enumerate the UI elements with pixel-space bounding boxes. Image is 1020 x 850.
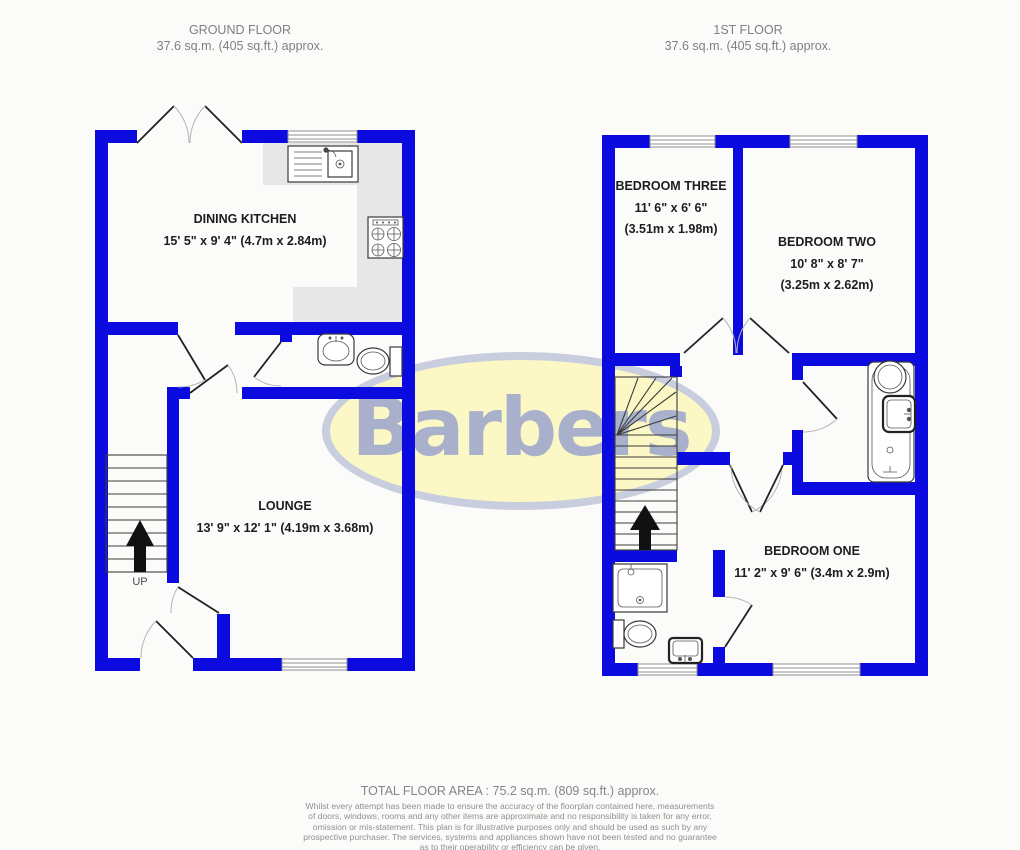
- bathroom-round-basin: [874, 361, 906, 393]
- dining-kitchen-name: DINING KITCHEN: [95, 209, 395, 231]
- patio-double-door: [137, 106, 242, 143]
- kitchen-sink: [288, 146, 358, 182]
- lounge-window: [282, 659, 347, 670]
- label-dining-kitchen: DINING KITCHEN 15' 5" x 9' 4" (4.7m x 2.…: [95, 209, 395, 252]
- first-floor-stairs: [615, 377, 677, 550]
- first-floor-title: 1ST FLOOR: [598, 22, 898, 38]
- bedroom-three-name: BEDROOM THREE: [571, 176, 771, 198]
- dining-kitchen-dims: 15' 5" x 9' 4" (4.7m x 2.84m): [95, 231, 395, 253]
- lounge-name: LOUNGE: [135, 496, 435, 518]
- lounge-dims: 13' 9" x 12' 1" (4.19m x 3.68m): [135, 518, 435, 540]
- disclaimer-line: as to their operability or efficiency ca…: [210, 842, 810, 850]
- kitchen-hall-door: [178, 335, 205, 387]
- label-bedroom-three: BEDROOM THREE 11' 6" x 6' 6" (3.51m x 1.…: [571, 176, 771, 241]
- bedroom-one-dims: 11' 2" x 9' 6" (3.4m x 2.9m): [662, 563, 962, 585]
- ground-floor-title: GROUND FLOOR: [90, 22, 390, 38]
- shower-room-toilet: [613, 620, 656, 648]
- bedroom-two-name: BEDROOM TWO: [727, 232, 927, 254]
- hall-inner-door: [190, 365, 237, 393]
- shower-tray: [613, 564, 667, 612]
- front-door: [141, 621, 193, 658]
- ground-floor-header: GROUND FLOOR 37.6 sq.m. (405 sq.ft.) app…: [90, 22, 390, 54]
- up-label: UP: [115, 576, 165, 588]
- first-floor-area: 37.6 sq.m. (405 sq.ft.) approx.: [598, 38, 898, 54]
- bedroom-two-door: [737, 318, 789, 353]
- disclaimer-line: of doors, windows, rooms and any other i…: [210, 811, 810, 821]
- bedroom-two-window: [790, 136, 857, 147]
- bedroom-three-window: [650, 136, 715, 147]
- bathroom-door: [803, 382, 837, 432]
- wc-basin: [318, 334, 354, 365]
- label-lounge: LOUNGE 13' 9" x 12' 1" (4.19m x 3.68m): [135, 496, 435, 539]
- shower-room-window: [638, 664, 697, 675]
- first-floor-header: 1ST FLOOR 37.6 sq.m. (405 sq.ft.) approx…: [598, 22, 898, 54]
- shower-room-door: [725, 597, 752, 647]
- bedroom-one-window: [773, 664, 860, 675]
- wc-door: [254, 342, 281, 386]
- disclaimer-line: Whilst every attempt has been made to en…: [210, 801, 810, 811]
- lounge-door: [171, 587, 219, 613]
- shower-room-basin: [669, 638, 702, 663]
- disclaimer: Whilst every attempt has been made to en…: [210, 801, 810, 850]
- bedroom-three-door: [684, 318, 736, 353]
- disclaimer-line: omission or mis-statement. This plan is …: [210, 822, 810, 832]
- floorplan-drawing: [0, 0, 1020, 850]
- bedroom-two-dims-imperial: 10' 8" x 8' 7": [727, 254, 927, 276]
- disclaimer-line: prospective purchaser. The services, sys…: [210, 832, 810, 842]
- wc-toilet: [357, 347, 402, 376]
- ground-floor-area: 37.6 sq.m. (405 sq.ft.) approx.: [90, 38, 390, 54]
- bathroom-sink: [883, 396, 915, 432]
- floorplan-page: Barbers: [0, 0, 1020, 850]
- label-bedroom-one: BEDROOM ONE 11' 2" x 9' 6" (3.4m x 2.9m): [662, 541, 962, 584]
- label-bedroom-two: BEDROOM TWO 10' 8" x 8' 7" (3.25m x 2.62…: [727, 232, 927, 297]
- kitchen-window: [288, 131, 357, 142]
- bedroom-one-name: BEDROOM ONE: [662, 541, 962, 563]
- bedroom-two-dims-metric: (3.25m x 2.62m): [727, 275, 927, 297]
- bedroom-three-dims-imperial: 11' 6" x 6' 6": [571, 198, 771, 220]
- bedroom-one-door: [730, 465, 783, 512]
- total-floor-area: TOTAL FLOOR AREA : 75.2 sq.m. (809 sq.ft…: [260, 784, 760, 798]
